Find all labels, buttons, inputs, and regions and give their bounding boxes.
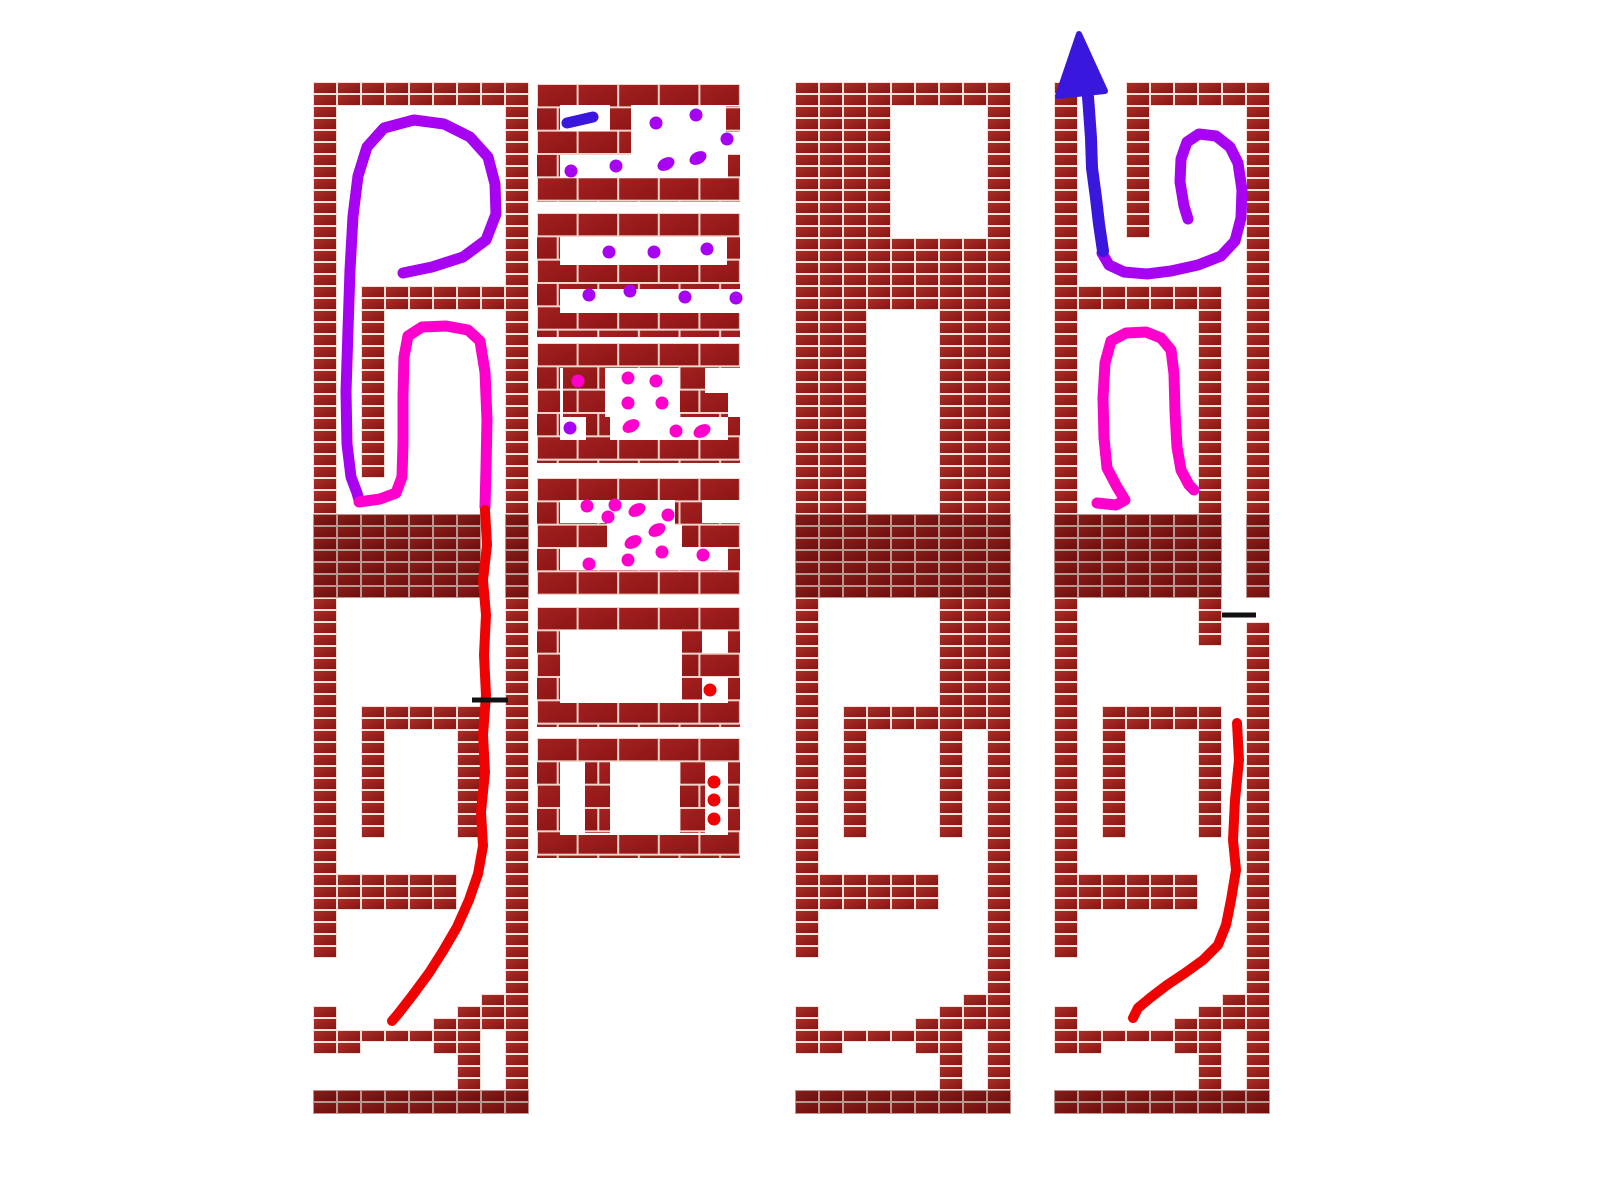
brick-wall: [537, 313, 740, 337]
brick-wall: [1198, 1006, 1222, 1090]
maze-scene: [0, 0, 1600, 1200]
brick-wall: [537, 84, 560, 178]
magenta-dot: [572, 375, 585, 388]
brick-wall: [457, 1006, 481, 1090]
brick-wall: [1174, 1018, 1198, 1054]
brick-wall: [1078, 286, 1222, 310]
dark-brick-band: [1246, 514, 1270, 598]
red-dot: [704, 684, 717, 697]
purple-dot: [603, 246, 616, 259]
magenta-dot: [620, 416, 642, 435]
brick-wall: [819, 874, 939, 898]
brick-wall: [537, 368, 560, 440]
dark-brick-band: [505, 514, 529, 598]
brick-wall: [560, 523, 607, 548]
brick-wall: [1198, 310, 1222, 514]
dark-brick-band: [313, 1090, 529, 1114]
exit-arrow-stem: [1088, 97, 1103, 251]
dark-brick-band: [313, 514, 481, 598]
brick-box-1: [537, 84, 740, 202]
brick-box-4: [537, 478, 740, 595]
brick-wall: [537, 343, 740, 368]
dark-brick-band: [795, 1090, 1011, 1114]
brick-wall: [537, 703, 740, 727]
brick-box-stack: [537, 84, 743, 858]
purple-dot: [721, 133, 734, 146]
blue-dash-mark: [567, 117, 593, 123]
brick-wall: [1054, 1042, 1102, 1054]
dark-brick-band: [1054, 514, 1222, 598]
brick-wall: [563, 368, 605, 417]
magenta-dot: [650, 375, 663, 388]
brick-wall: [481, 994, 505, 1030]
brick-wall: [682, 630, 702, 653]
brick-wall: [680, 762, 705, 833]
brick-wall: [1126, 82, 1150, 238]
maze-drawing-canvas: [0, 0, 1600, 1200]
purple-dot: [564, 422, 577, 435]
brick-wall: [1246, 622, 1270, 1090]
red-dot: [708, 776, 721, 789]
brick-wall: [987, 598, 1011, 1090]
brick-wall: [727, 237, 740, 265]
magenta-dot: [622, 397, 635, 410]
brick-wall: [1054, 106, 1078, 514]
magenta-dot: [662, 509, 675, 522]
maze-column-4: [1054, 34, 1270, 1114]
brick-wall: [795, 898, 939, 910]
brick-wall: [728, 417, 740, 440]
brick-box-3: [537, 343, 740, 463]
brick-wall: [843, 706, 963, 730]
brick-wall: [586, 417, 610, 440]
purple-dot: [650, 117, 663, 130]
maze-column-3: [795, 82, 1011, 1114]
brick-wall: [361, 730, 385, 838]
brick-wall: [537, 738, 740, 762]
brick-wall: [537, 762, 560, 835]
purple-dot: [565, 165, 578, 178]
magenta-dot: [626, 500, 648, 519]
purple-dot: [655, 154, 677, 173]
dark-brick-band: [1054, 1090, 1270, 1114]
brick-wall: [361, 706, 481, 730]
magenta-dot: [622, 372, 635, 385]
up-arrow-icon: [1058, 34, 1105, 96]
brick-wall: [560, 265, 740, 289]
brick-wall: [585, 762, 610, 833]
brick-wall: [680, 393, 728, 417]
brick-wall: [1222, 994, 1246, 1030]
brick-wall: [537, 84, 740, 105]
magenta-dot: [622, 532, 644, 551]
brick-wall: [537, 570, 740, 595]
brick-wall: [610, 105, 631, 155]
purple-dot: [687, 148, 709, 167]
red-dot: [708, 794, 721, 807]
magenta-dot: [670, 425, 683, 438]
brick-wall: [682, 523, 728, 547]
brick-wall: [728, 762, 740, 835]
purple-dot: [701, 243, 714, 256]
brick-wall: [537, 835, 740, 858]
magenta-dot: [581, 500, 594, 513]
brick-wall: [361, 310, 385, 478]
brick-box-6: [537, 738, 740, 858]
dark-brick-band: [795, 514, 1011, 598]
brick-wall: [313, 106, 337, 514]
maze-column-1: [313, 82, 529, 1114]
magenta-dot: [691, 421, 713, 440]
red-dot: [708, 813, 721, 826]
brick-wall: [675, 500, 702, 525]
magenta-dot: [646, 520, 668, 539]
purple-dot: [648, 246, 661, 259]
magenta-dot: [656, 546, 669, 559]
route-purple: [1102, 134, 1242, 274]
magenta-dot: [583, 558, 596, 571]
brick-wall: [728, 154, 740, 178]
brick-wall: [537, 213, 740, 237]
purple-dot: [730, 292, 743, 305]
brick-wall: [361, 286, 529, 310]
brick-wall: [560, 131, 610, 155]
wall-opening: [867, 310, 939, 514]
brick-wall: [1102, 706, 1222, 730]
brick-wall: [313, 898, 457, 910]
brick-wall: [337, 874, 457, 898]
brick-box-5: [537, 607, 740, 727]
brick-wall: [728, 523, 740, 570]
brick-wall: [1054, 898, 1198, 910]
wall-opening: [891, 106, 987, 238]
magenta-dot: [602, 511, 615, 524]
brick-wall: [939, 730, 963, 838]
brick-wall: [537, 440, 740, 463]
brick-wall: [726, 106, 740, 132]
brick-wall: [313, 82, 529, 106]
purple-dot: [679, 291, 692, 304]
route-red: [1133, 723, 1239, 1018]
brick-wall: [939, 1006, 963, 1090]
purple-dot: [690, 109, 703, 122]
brick-wall: [433, 1018, 457, 1054]
purple-dot: [610, 160, 623, 173]
brick-wall: [537, 178, 740, 202]
brick-wall: [728, 630, 740, 703]
brick-wall: [537, 237, 560, 313]
brick-wall: [680, 368, 705, 393]
brick-wall: [1102, 730, 1126, 838]
brick-wall: [843, 730, 867, 838]
brick-box-2: [537, 213, 743, 337]
brick-wall: [537, 500, 560, 570]
brick-wall: [915, 1018, 939, 1054]
magenta-dot: [609, 499, 622, 512]
route-magenta: [1097, 332, 1194, 505]
brick-wall: [963, 994, 987, 1030]
brick-wall: [537, 607, 740, 630]
brick-wall: [537, 630, 560, 703]
brick-wall: [682, 653, 728, 677]
brick-wall: [313, 1042, 361, 1054]
brick-wall: [1078, 874, 1198, 898]
brick-wall: [537, 478, 740, 500]
brick-wall: [1198, 598, 1222, 646]
brick-wall: [795, 1042, 843, 1054]
brick-wall: [1198, 730, 1222, 838]
magenta-dot: [656, 397, 669, 410]
magenta-dot: [697, 549, 710, 562]
purple-dot: [624, 285, 637, 298]
magenta-dot: [622, 554, 635, 567]
brick-wall: [682, 677, 702, 700]
purple-dot: [583, 289, 596, 302]
